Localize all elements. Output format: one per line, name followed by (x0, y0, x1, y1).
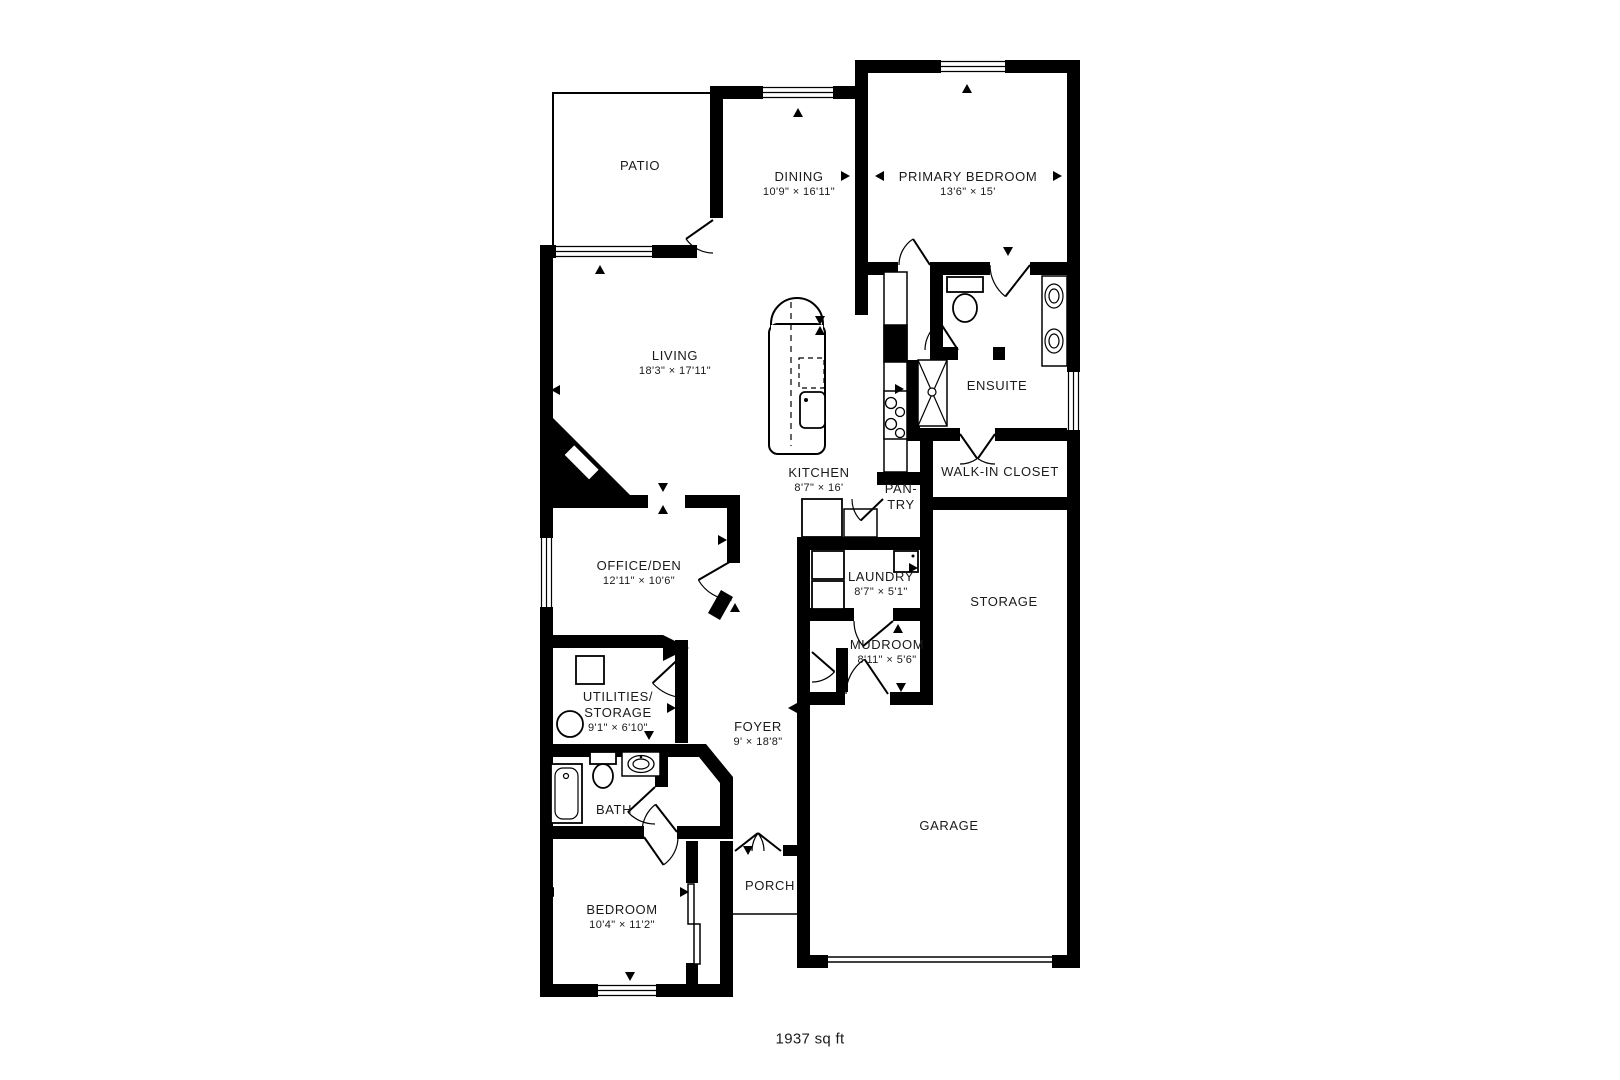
kitchen-island (769, 298, 825, 454)
room-label-mudroom: MUDROOM8'11" × 5'6" (850, 637, 924, 667)
washer-dryer (812, 551, 844, 609)
fridge (802, 499, 842, 537)
room-label-ensuite: ENSUITE (967, 378, 1028, 394)
kitchen-cabinet (844, 509, 877, 537)
room-label-office-den: OFFICE/DEN12'11" × 10'6" (597, 558, 682, 588)
bedroom-closet-sliders (688, 884, 700, 964)
room-label-storage: STORAGE (970, 594, 1038, 610)
furnace (576, 656, 604, 684)
room-label-walk-in-closet: WALK-IN CLOSET (941, 464, 1059, 480)
floorplan-page: PATIO DINING10'9" × 16'11" PRIMARY BEDRO… (0, 0, 1620, 1080)
room-label-living: LIVING18'3" × 17'11" (639, 348, 711, 378)
room-label-primary-bedroom: PRIMARY BEDROOM13'6" × 15' (899, 169, 1038, 199)
ensuite-toilet (947, 277, 983, 322)
room-label-kitchen: KITCHEN8'7" × 16' (788, 465, 849, 495)
ensuite-vanity-sinks (1042, 276, 1067, 366)
bath-sink (622, 752, 660, 776)
kitchen-counter-stove (884, 272, 907, 472)
room-label-garage: GARAGE (919, 818, 978, 834)
room-label-dining: DINING10'9" × 16'11" (763, 169, 835, 199)
floorplan-drawing (0, 0, 1620, 1080)
room-label-bath: BATH (596, 802, 632, 818)
room-label-utilities-storage: UTILITIES/STORAGE9'1" × 6'10" (583, 689, 653, 735)
total-area-label: 1937 sq ft (776, 1031, 845, 1048)
foyer-chamfer-wall (665, 744, 733, 826)
room-label-porch: PORCH (745, 878, 795, 894)
room-label-bedroom: BEDROOM10'4" × 11'2" (586, 902, 657, 932)
room-label-laundry: LAUNDRY8'7" × 5'1" (848, 569, 914, 599)
room-label-foyer: FOYER9' × 18'8" (733, 719, 782, 749)
fireplace-corner (553, 418, 635, 500)
room-label-patio: PATIO (620, 158, 660, 174)
room-label-pantry: PAN-TRY (885, 481, 918, 513)
bathtub (551, 764, 582, 823)
bath-toilet (590, 752, 616, 788)
water-heater (557, 711, 583, 737)
shower (918, 360, 947, 426)
